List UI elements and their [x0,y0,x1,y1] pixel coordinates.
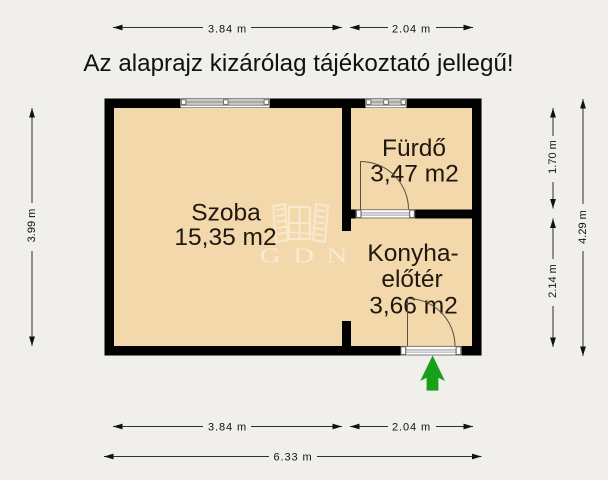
svg-text:Az alaprajz kizárólag tájékozt: Az alaprajz kizárólag tájékoztató jelleg… [83,50,513,77]
svg-text:Szoba: Szoba [191,200,261,227]
svg-text:3.84 m: 3.84 m [208,422,247,434]
svg-text:2.04 m: 2.04 m [392,23,431,35]
svg-text:Konyha-: Konyha- [367,240,458,267]
svg-text:előtér: előtér [381,266,442,293]
svg-text:4.29 m: 4.29 m [577,210,589,244]
svg-text:3.99 m: 3.99 m [26,209,38,243]
svg-text:Fürdő: Fürdő [382,135,446,162]
svg-text:3,47 m2: 3,47 m2 [370,161,459,188]
svg-text:2.14 m: 2.14 m [547,264,559,298]
svg-text:15,35 m2: 15,35 m2 [174,224,276,251]
svg-text:3.84 m: 3.84 m [208,23,247,35]
svg-text:1.70 m: 1.70 m [547,140,559,174]
svg-text:2.04 m: 2.04 m [392,422,431,434]
svg-text:6.33 m: 6.33 m [273,452,312,464]
